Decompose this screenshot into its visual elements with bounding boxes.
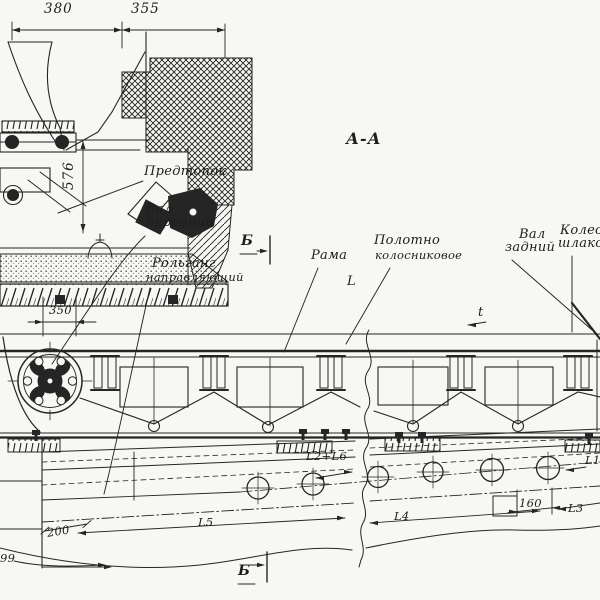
dim-ref-L1: L1: [585, 454, 600, 466]
dimension-line-576: [81, 140, 86, 233]
section-marker-b-top-letter: Б: [241, 234, 253, 249]
dim-99: 99: [0, 552, 15, 564]
section-title: А-А: [346, 131, 382, 148]
label-front-shaft-2: передний: [146, 216, 214, 230]
dim-160: 160: [519, 497, 542, 509]
dim-ref-t: t: [478, 306, 484, 320]
sprocket-wheel: [8, 342, 92, 420]
lower-section: [0, 322, 600, 584]
dim-355: 355: [131, 2, 160, 16]
label-grate-belt-1: Полотно: [374, 234, 440, 248]
drawing-sheet: 380 355 А-А Предтопок Вал передний Рольг…: [0, 0, 600, 600]
label-slag-wheel-2: шлаковое: [558, 237, 600, 251]
dim-ref-L4: L4: [394, 510, 410, 522]
dim-ref-L3: L3: [568, 502, 584, 514]
label-slag-wheel-clip: Колесо шлаковое: [558, 224, 600, 254]
bearing-brackets: [91, 356, 592, 390]
dim-ref-L5: L5: [198, 516, 214, 528]
dim-576: 576: [62, 161, 76, 190]
hopper-zigzag: [80, 392, 600, 433]
dim-ref-L: L: [347, 275, 356, 289]
dim-350: 350: [49, 304, 72, 316]
label-rear-shaft-2: задний: [505, 241, 555, 255]
label-predtopok: Предтопок: [144, 165, 226, 179]
label-frame: Рама: [311, 249, 347, 263]
dimension-line-380-355: [12, 22, 225, 58]
dim-ref-L2-L6: L2+L6: [306, 450, 347, 462]
grate-belt-band: [0, 284, 228, 306]
section-marker-b-bottom-letter: Б: [238, 564, 250, 579]
label-roller-table-2: направляющий: [146, 271, 244, 283]
frame-panels: [120, 358, 553, 426]
break-line: [359, 330, 371, 567]
drawing-canvas: [0, 0, 600, 600]
frame-rails: [0, 334, 600, 438]
mounting-strips: [8, 438, 600, 453]
dim-380: 380: [44, 2, 73, 16]
label-roller-table-1: Рольганг: [152, 257, 216, 271]
dim-200: 200: [46, 523, 70, 538]
label-grate-belt-2: колосниковое: [375, 249, 462, 261]
